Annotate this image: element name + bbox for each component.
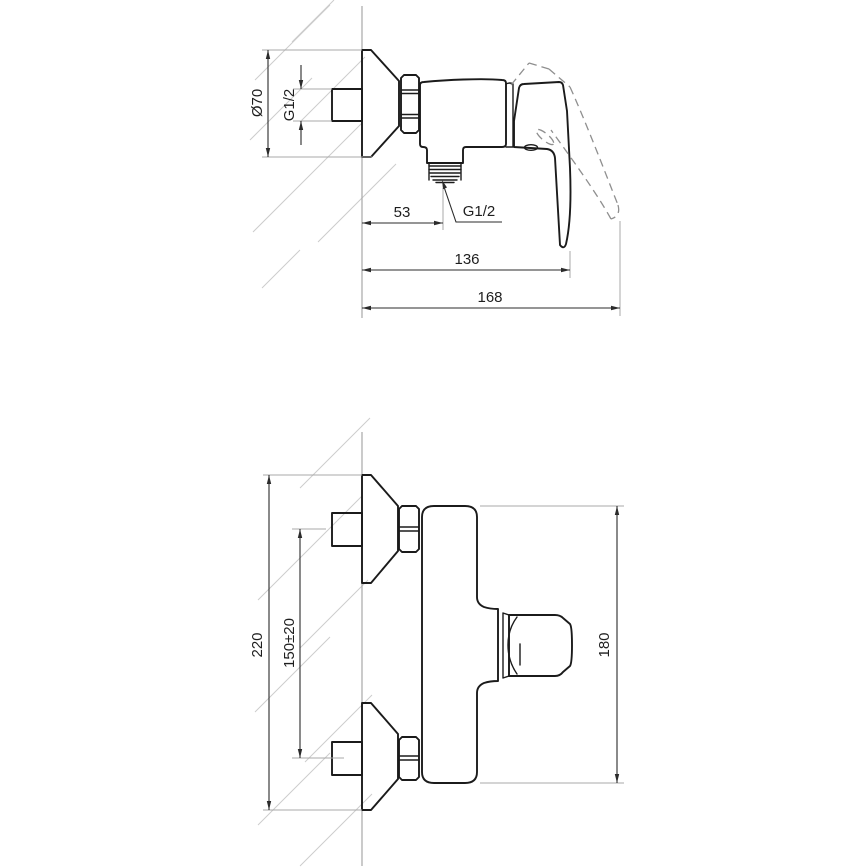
escutcheon-front-lower bbox=[362, 703, 398, 810]
escutcheon-side bbox=[362, 50, 399, 157]
hex-nut-side bbox=[401, 75, 419, 133]
handle-knob-front bbox=[503, 613, 572, 678]
hex-nut-front-upper bbox=[399, 506, 419, 552]
dim-label-outlet-thread: G1/2 bbox=[463, 203, 496, 220]
phantom-handle-raised bbox=[511, 63, 619, 219]
extension-lines-front bbox=[263, 475, 624, 810]
leader-outlet-thread: G1/2 bbox=[442, 180, 502, 222]
wall-hatching-front-view bbox=[255, 418, 372, 866]
dim-escutcheon-diameter: Ø70 bbox=[249, 50, 270, 157]
front-view: 220 150±20 180 bbox=[249, 418, 624, 866]
dim-label-wall-to-lever-raised: 168 bbox=[477, 289, 502, 306]
shower-mixer-drawing: Ø70 G1/2 53 G1/2 bbox=[0, 0, 868, 868]
mixer-body-side bbox=[420, 79, 506, 163]
escutcheon-front-upper bbox=[362, 475, 398, 583]
dim-label-inlet-thread: G1/2 bbox=[281, 89, 298, 122]
side-view: Ø70 G1/2 53 G1/2 bbox=[249, 0, 620, 318]
dim-label-escutcheon-diameter: Ø70 bbox=[249, 89, 266, 117]
dim-label-wall-to-lever: 136 bbox=[454, 251, 479, 268]
lever-handle-side bbox=[514, 82, 571, 247]
outlet-thread-side bbox=[429, 163, 461, 183]
dim-inlet-thread: G1/2 bbox=[281, 65, 303, 145]
technical-drawing-canvas: Ø70 G1/2 53 G1/2 bbox=[0, 0, 868, 868]
dim-wall-to-outlet: 53 bbox=[362, 204, 443, 225]
dim-label-body-height: 180 bbox=[596, 632, 613, 657]
inlet-pipe-side bbox=[332, 89, 362, 121]
dim-label-wall-to-outlet: 53 bbox=[394, 204, 411, 221]
dim-overall-height: 220 bbox=[249, 475, 271, 810]
dim-wall-to-lever-raised: 168 bbox=[362, 289, 620, 310]
hex-nut-front-lower bbox=[399, 737, 419, 780]
dim-label-overall-height: 220 bbox=[249, 632, 266, 657]
dim-label-connection-spacing: 150±20 bbox=[281, 618, 298, 668]
cartridge-cover-side bbox=[506, 83, 513, 147]
dim-body-height: 180 bbox=[596, 506, 619, 783]
dim-wall-to-lever: 136 bbox=[362, 251, 570, 272]
mixer-body-front bbox=[422, 506, 498, 783]
inlet-pipe-front-upper bbox=[332, 513, 362, 546]
wall-hatching-side-view bbox=[250, 0, 396, 288]
dim-connection-spacing: 150±20 bbox=[281, 529, 302, 758]
